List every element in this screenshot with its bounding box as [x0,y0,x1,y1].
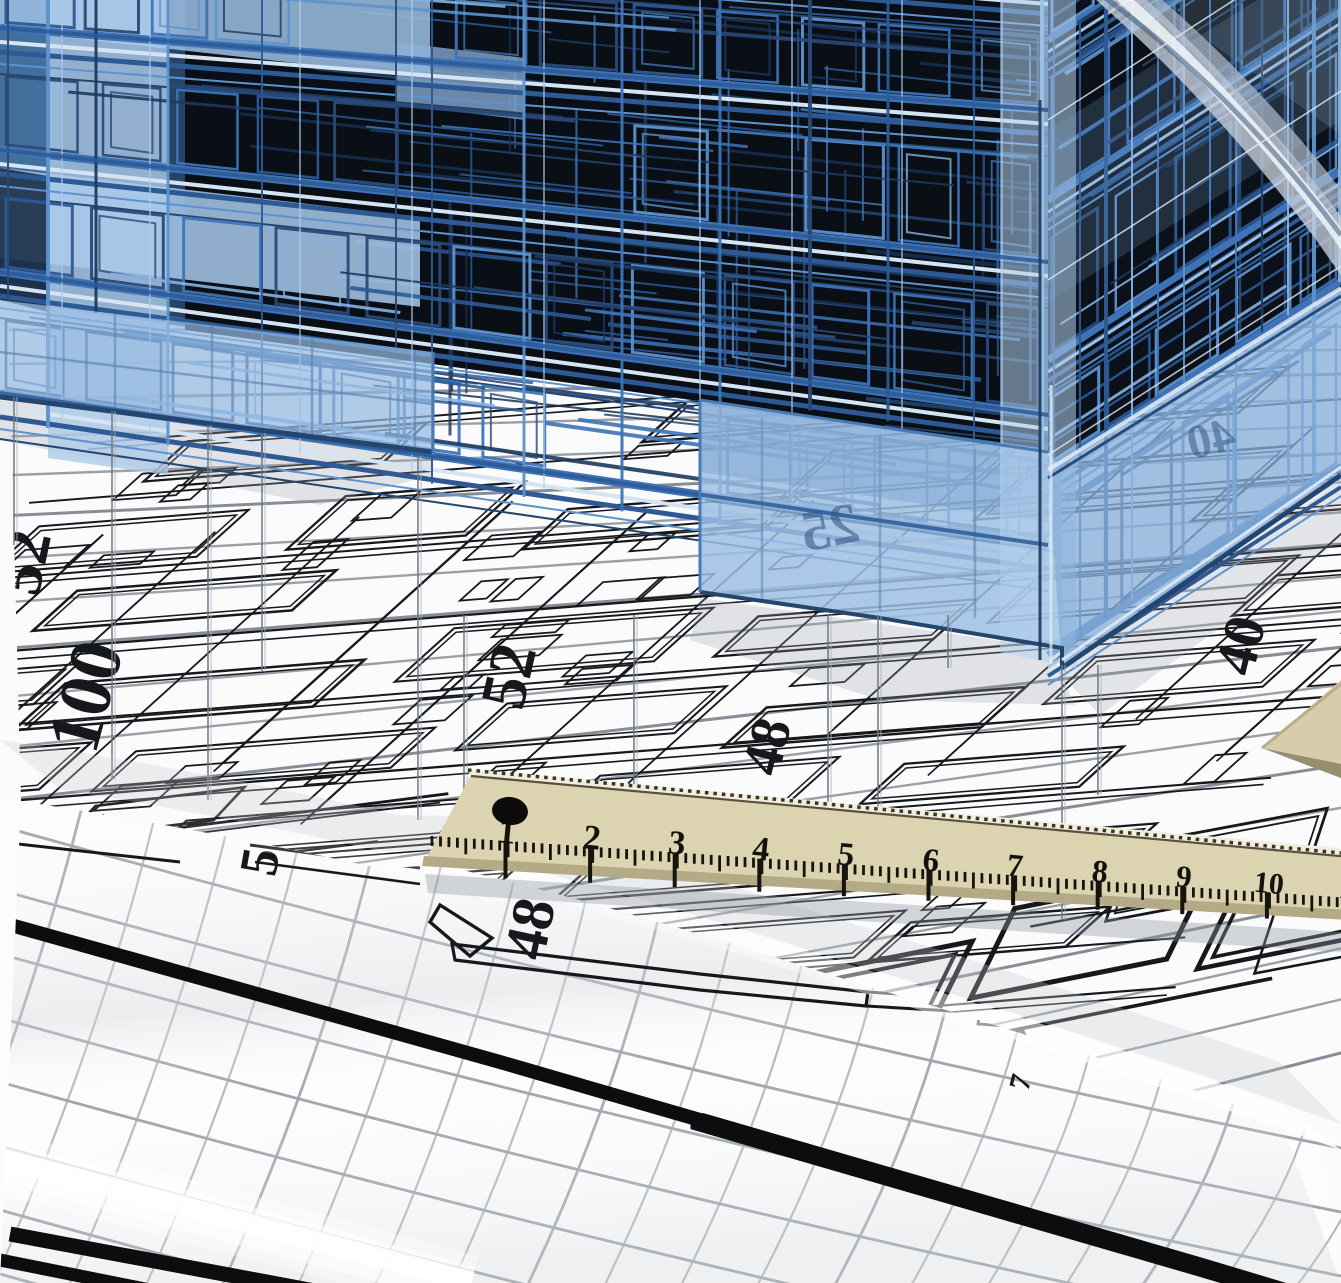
svg-text:3: 3 [667,824,687,862]
svg-text:4: 4 [751,830,771,868]
svg-text:6: 6 [921,842,941,879]
svg-text:2: 2 [582,817,603,857]
svg-text:10: 10 [1252,866,1285,902]
svg-text:5: 5 [836,836,856,873]
